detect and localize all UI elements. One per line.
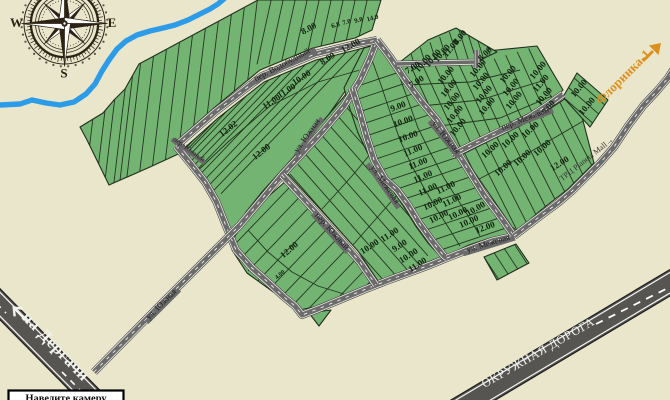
svg-text:W: W	[10, 15, 23, 30]
svg-text:E: E	[108, 15, 117, 30]
svg-text:S: S	[60, 66, 67, 81]
svg-text:Наведите камеру: Наведите камеру	[25, 394, 107, 400]
